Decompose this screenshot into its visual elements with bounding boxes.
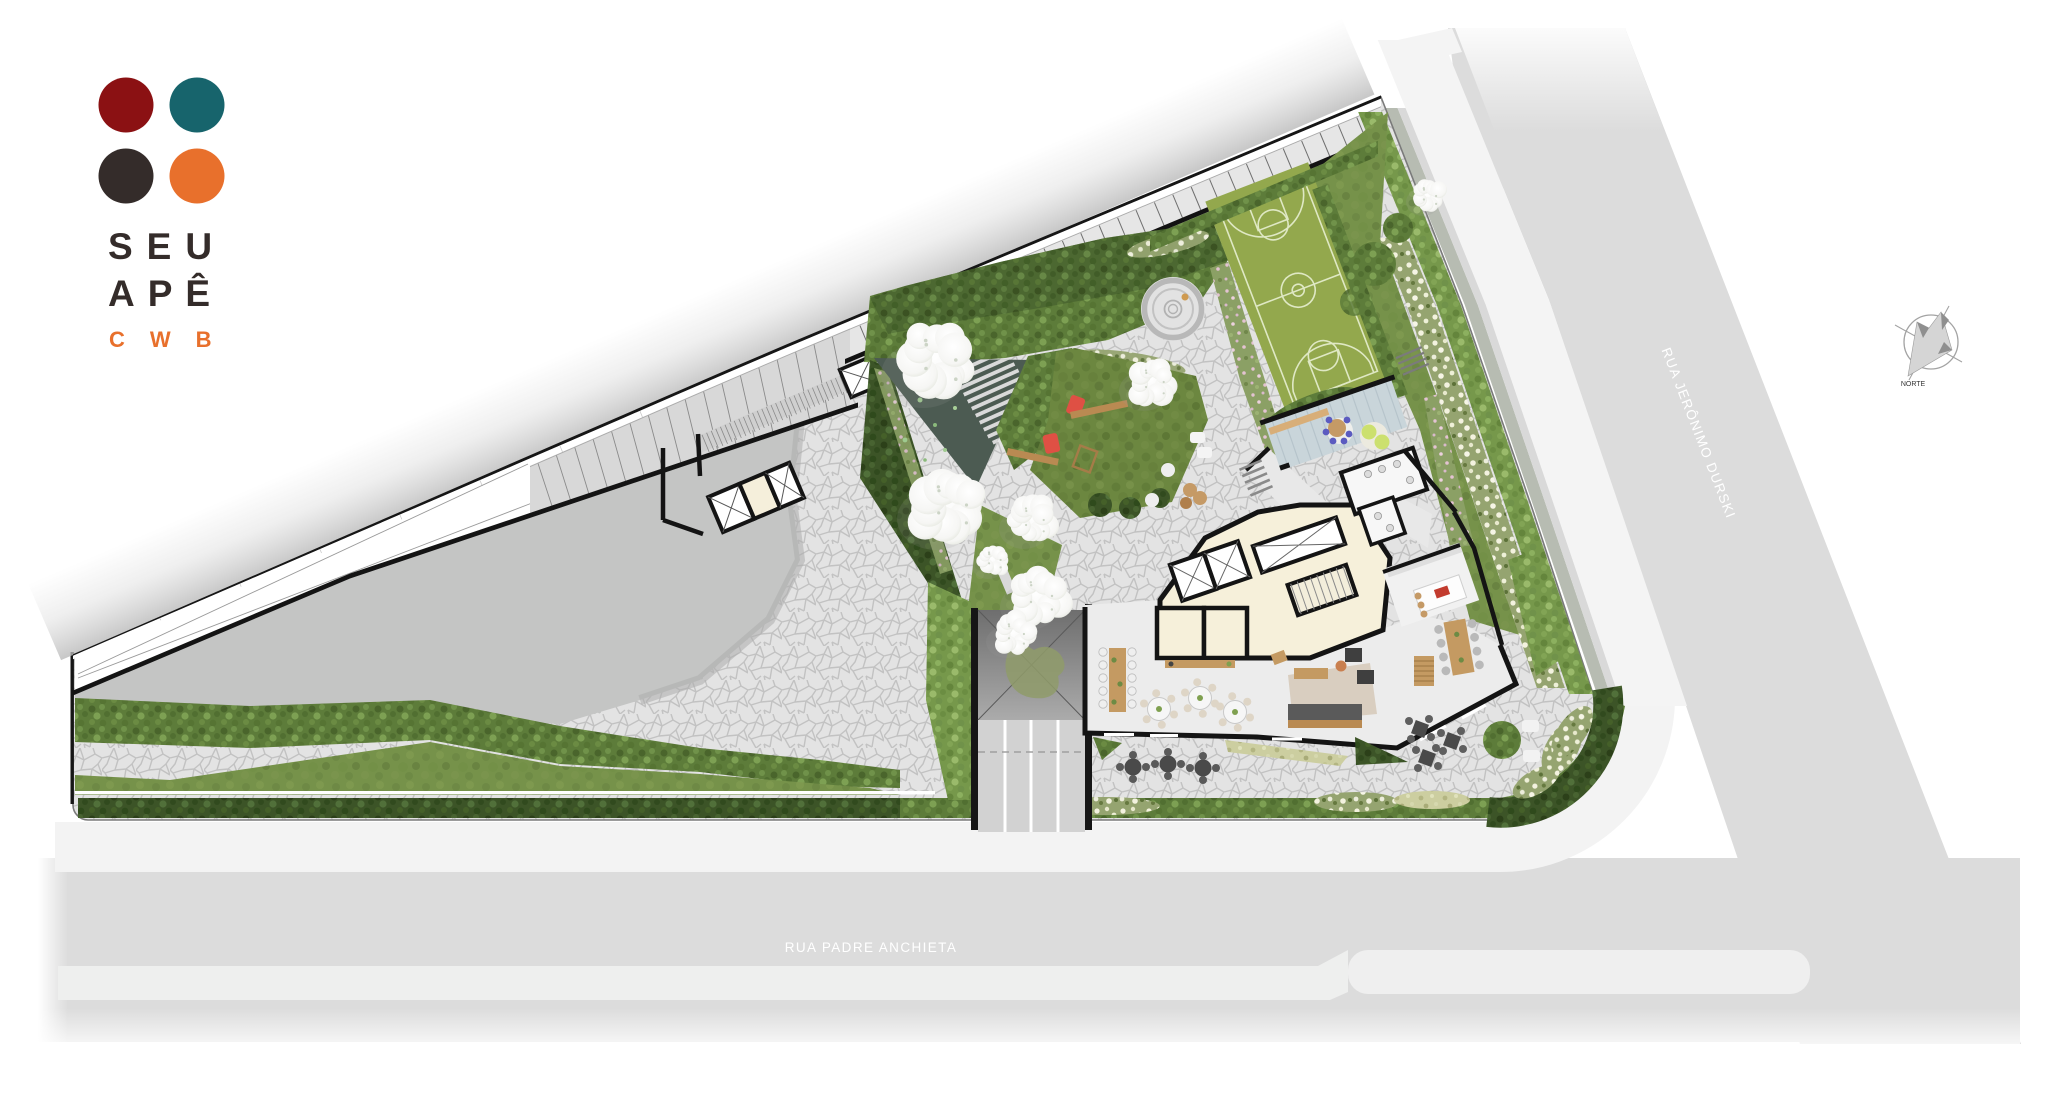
svg-text:NORTE: NORTE <box>1901 381 1926 388</box>
svg-text:CWB: CWB <box>109 327 237 352</box>
svg-text:RUA PADRE ANCHIETA: RUA PADRE ANCHIETA <box>785 940 957 955</box>
svg-text:SEU: SEU <box>108 226 226 267</box>
svg-text:APÊ: APÊ <box>108 272 223 314</box>
